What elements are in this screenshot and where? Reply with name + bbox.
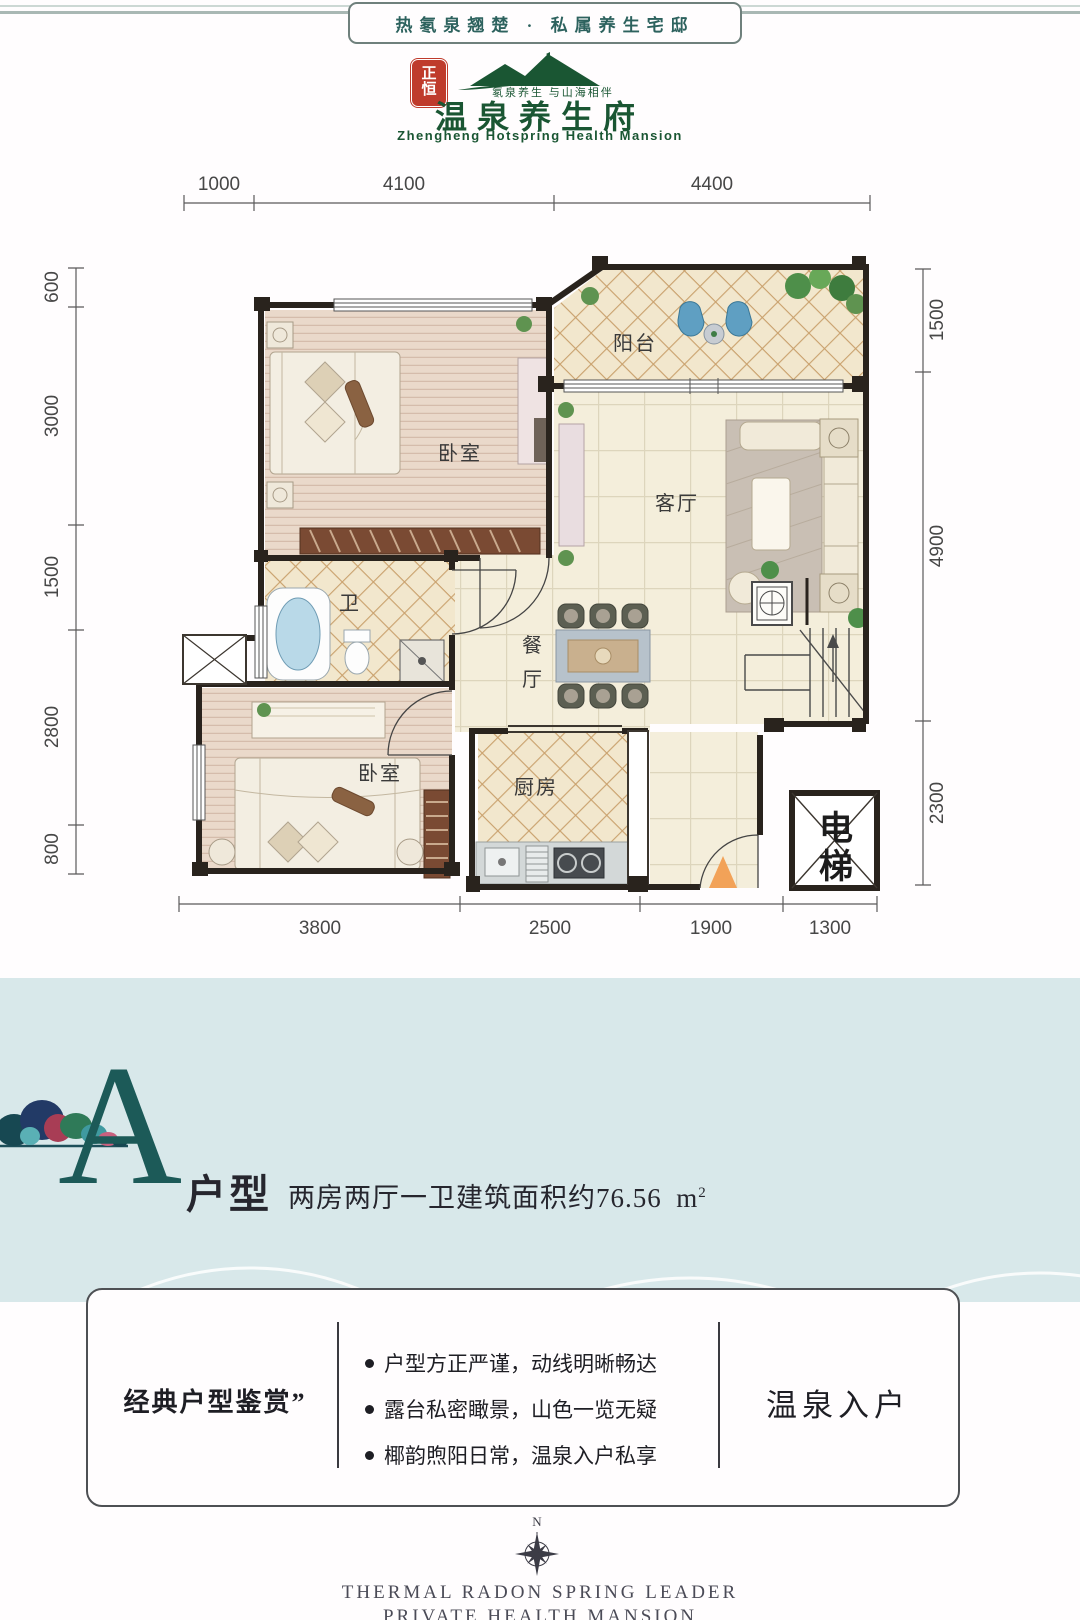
feature-item: 椰韵煦阳日常，温泉入户私享 — [365, 1432, 710, 1478]
bullet-icon — [365, 1451, 374, 1460]
compass-icon: N — [497, 1512, 577, 1580]
dim-left-2800: 2800 — [42, 706, 63, 748]
floorplan: 1000 4100 4400 600 3000 1500 2800 800 15… — [0, 150, 1080, 970]
room-label-bedroom-bottom: 卧室 — [358, 762, 402, 785]
banner: 热氡泉翘楚 · 私属养生宅邸 — [348, 2, 742, 44]
dim-right-2300: 2300 — [927, 782, 948, 824]
dim-top-4400: 4400 — [691, 174, 733, 195]
room-label-living: 客厅 — [655, 492, 699, 515]
banner-text: 热氡泉翘楚 · 私属养生宅邸 — [395, 11, 694, 36]
features-bullets: 户型方正严谨，动线明晰畅达 露台私密瞰景，山色一览无疑 椰韵煦阳日常，温泉入户私… — [365, 1340, 710, 1478]
poster-page: 热氡泉翘楚 · 私属养生宅邸 正 恒 氡泉养生 与山海相伴 温泉养生府 Zhen… — [0, 0, 1080, 1620]
feature-item: 户型方正严谨，动线明晰畅达 — [365, 1340, 710, 1386]
unit-area-unit: m — [676, 1183, 698, 1213]
unit-area-text: 两房两厅一卫建筑面积约76.56 — [288, 1183, 662, 1213]
compass-n-label: N — [532, 1514, 542, 1529]
features-divider-left — [337, 1322, 339, 1468]
dim-left-600: 600 — [42, 271, 63, 303]
dim-right-4900: 4900 — [927, 525, 948, 567]
dim-bottom-1900: 1900 — [690, 918, 732, 939]
unit-area: 两房两厅一卫建筑面积约76.56 m2 — [288, 1176, 707, 1215]
room-label-elevator-1: 电 — [819, 810, 853, 848]
dim-bottom-3800: 3800 — [299, 918, 341, 939]
features-highlight: 温泉入户 — [720, 1380, 956, 1425]
feature-text-3: 椰韵煦阳日常，温泉入户私享 — [384, 1440, 657, 1470]
features-title: 经典户型鉴赏” — [100, 1382, 330, 1419]
room-label-balcony: 阳台 — [613, 332, 657, 355]
unit-area-exp: 2 — [698, 1185, 707, 1201]
dim-bottom-1300: 1300 — [809, 918, 851, 939]
room-label-bedroom-top: 卧室 — [438, 442, 482, 465]
feature-text-2: 露台私密瞰景，山色一览无疑 — [384, 1394, 657, 1424]
room-label-dining-2: 厅 — [522, 669, 544, 691]
dim-left-3000: 3000 — [42, 395, 63, 437]
seal-char-1: 正 — [421, 67, 436, 83]
dim-left-1500: 1500 — [42, 556, 63, 598]
footer-line-2: PRIVATE HEALTH MANSION — [0, 1606, 1080, 1620]
feature-text-1: 户型方正严谨，动线明晰畅达 — [384, 1348, 657, 1378]
bullet-icon — [365, 1359, 374, 1368]
unit-letter: A — [58, 1040, 182, 1212]
unit-type-label: 户型 — [186, 1162, 272, 1220]
dim-bottom-2500: 2500 — [529, 918, 571, 939]
room-label-bath: 卫 — [339, 593, 361, 615]
room-label-dining-1: 餐 — [522, 634, 544, 657]
dim-right-1500: 1500 — [927, 299, 948, 341]
feature-item: 露台私密瞰景，山色一览无疑 — [365, 1386, 710, 1432]
room-label-kitchen: 厨房 — [514, 776, 558, 799]
dim-left-800: 800 — [42, 833, 63, 865]
room-label-elevator-2: 梯 — [819, 848, 853, 886]
logo-subtitle: Zhengheng Hotspring Health Mansion — [0, 128, 1080, 143]
dim-top-4100: 4100 — [383, 174, 425, 195]
dim-top-1000: 1000 — [198, 174, 240, 195]
footer-line-1: THERMAL RADON SPRING LEADER — [0, 1582, 1080, 1604]
bullet-icon — [365, 1405, 374, 1414]
